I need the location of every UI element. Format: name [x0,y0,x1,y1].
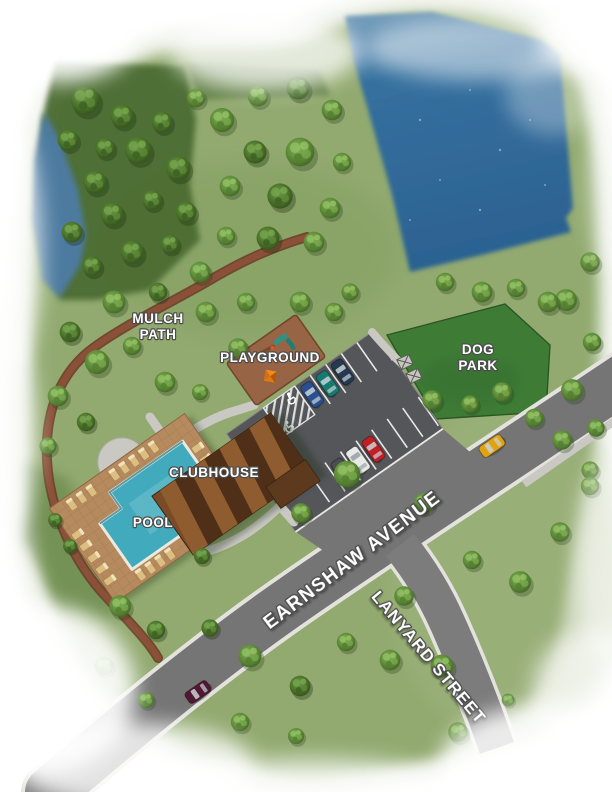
edge-wash [170,14,360,90]
label-playground: PLAYGROUND [220,350,320,365]
label-mulch-path-line2: PATH [140,327,177,342]
label-dog-park-line1: DOG [462,342,494,357]
label-pool: POOL [133,515,173,530]
site-plan-illustration: MULCH PATH PLAYGROUND DOG PARK CLUBHOUSE… [0,0,612,792]
label-mulch-path-line1: MULCH [132,311,183,326]
label-clubhouse: CLUBHOUSE [169,465,259,480]
label-dog-park-line2: PARK [458,358,497,373]
site-plan-canvas: MULCH PATH PLAYGROUND DOG PARK CLUBHOUSE… [0,0,612,792]
